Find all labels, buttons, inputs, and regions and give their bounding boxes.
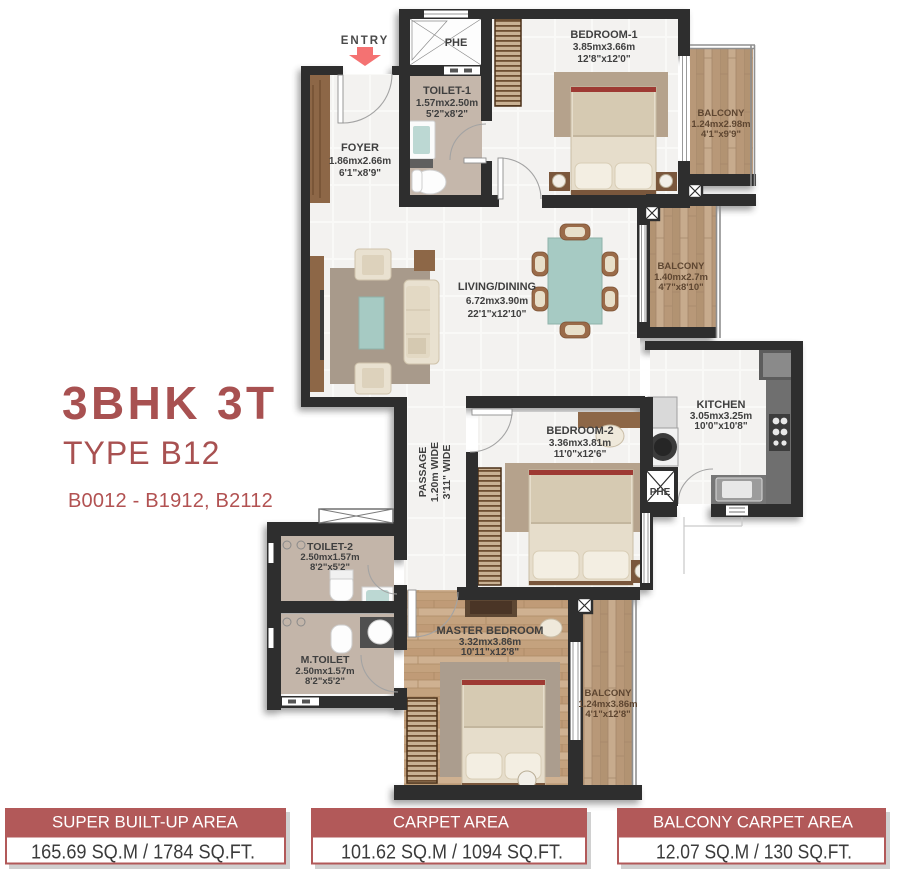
svg-text:5'2"x8'2": 5'2"x8'2" [426,109,468,120]
svg-text:22'1"x12'10": 22'1"x12'10" [468,309,527,320]
svg-text:6'1"x8'9": 6'1"x8'9" [339,168,381,179]
svg-text:10'0"x10'8": 10'0"x10'8" [694,421,747,432]
svg-text:FOYER: FOYER [341,142,379,154]
svg-text:BEDROOM-2: BEDROOM-2 [546,425,613,437]
svg-text:1.57mx2.50m: 1.57mx2.50m [416,98,478,109]
svg-text:12'8"x12'0": 12'8"x12'0" [577,54,630,65]
svg-text:SUPER BUILT-UP AREA: SUPER BUILT-UP AREA [52,813,239,832]
svg-text:10'11"x12'8": 10'11"x12'8" [461,647,519,658]
svg-text:BALCONY CARPET AREA: BALCONY CARPET AREA [653,813,854,832]
svg-text:BALCONY: BALCONY [658,261,706,272]
svg-text:6.72mx3.90m: 6.72mx3.90m [466,296,528,307]
svg-text:MASTER BEDROOM: MASTER BEDROOM [437,625,544,637]
svg-text:3'11" WIDE: 3'11" WIDE [441,445,453,500]
svg-text:BEDROOM-1: BEDROOM-1 [570,29,637,41]
svg-text:8'2"x5'2": 8'2"x5'2" [310,562,350,573]
svg-text:3BHK 3T: 3BHK 3T [62,377,278,429]
svg-text:B0012 - B1912, B2112: B0012 - B1912, B2112 [68,490,273,512]
svg-text:4'7"x8'10": 4'7"x8'10" [658,282,703,293]
svg-text:PHE: PHE [445,37,468,49]
svg-text:CARPET AREA: CARPET AREA [393,813,510,832]
svg-text:TYPE B12: TYPE B12 [63,435,220,471]
svg-text:PASSAGE: PASSAGE [417,447,429,498]
svg-text:M.TOILET: M.TOILET [301,654,350,666]
svg-text:1.20m WIDE: 1.20m WIDE [429,442,441,502]
svg-text:1.86mx2.66m: 1.86mx2.66m [329,156,391,167]
svg-text:TOILET-1: TOILET-1 [423,85,471,97]
svg-text:KITCHEN: KITCHEN [697,399,746,411]
svg-text:LIVING/DINING: LIVING/DINING [458,281,536,293]
svg-text:12.07 SQ.M / 130 SQ.FT.: 12.07 SQ.M / 130 SQ.FT. [656,842,852,864]
svg-text:PHE: PHE [650,487,671,498]
svg-text:11'0"x12'6": 11'0"x12'6" [554,449,607,460]
svg-text:4'1"x9'9": 4'1"x9'9" [701,129,741,140]
svg-text:165.69 SQ.M / 1784 SQ.FT.: 165.69 SQ.M / 1784 SQ.FT. [31,842,255,864]
svg-text:BALCONY: BALCONY [698,108,746,119]
svg-text:BALCONY: BALCONY [585,688,633,699]
svg-text:4'1"x12'8": 4'1"x12'8" [585,709,630,720]
svg-text:8'2"x5'2": 8'2"x5'2" [305,676,345,687]
svg-text:101.62 SQ.M / 1094 SQ.FT.: 101.62 SQ.M / 1094 SQ.FT. [341,842,563,864]
svg-text:3.85mx3.66m: 3.85mx3.66m [573,42,635,53]
svg-text:ENTRY: ENTRY [341,35,390,47]
svg-text:3.36mx3.81m: 3.36mx3.81m [549,438,611,449]
